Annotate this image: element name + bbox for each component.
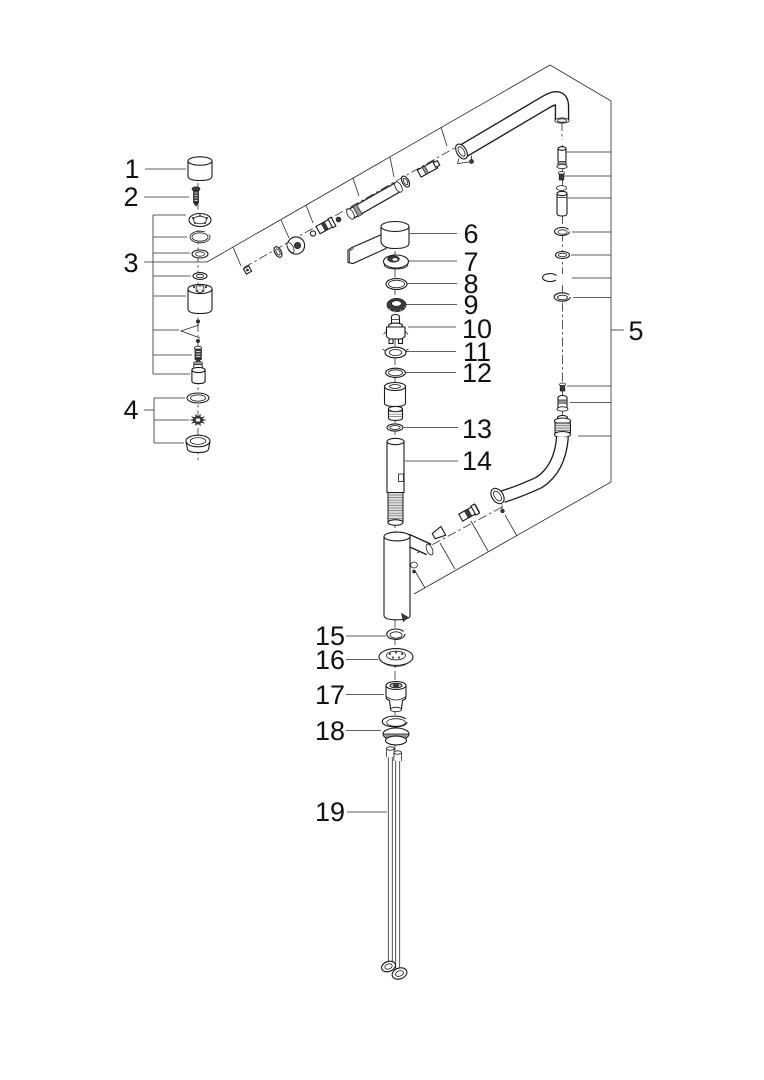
part-3-bushing <box>192 367 205 383</box>
part-2-screw <box>192 187 200 206</box>
part-18-mounting-nut <box>382 716 409 745</box>
part-7-cap-ring <box>384 255 409 269</box>
sleeve-unlabeled <box>385 383 406 407</box>
part-label-16: 16 <box>315 645 345 675</box>
diagram-canvas: 1 2 3 4 5 6 7 8 9 10 11 12 13 14 15 16 1… <box>0 0 764 1080</box>
part-3-screw-and-nut <box>193 346 202 368</box>
part-3-open-ring <box>190 229 212 243</box>
spray-head-assembly <box>243 159 440 274</box>
part-16-base-flange <box>379 649 413 667</box>
adapter-unlabeled <box>389 406 403 420</box>
part-3-cartridge-body <box>188 284 212 313</box>
part-label-13: 13 <box>462 414 492 444</box>
part-17-mounting-bush <box>386 682 406 712</box>
exploded-diagram-svg: 1 2 3 4 5 6 7 8 9 10 11 12 13 14 15 16 1… <box>0 0 764 1080</box>
bracket-4 <box>154 398 189 443</box>
part-3-funnel <box>181 320 200 343</box>
part-label-14: 14 <box>462 446 492 476</box>
body-side-port <box>407 540 434 556</box>
part-11-ring <box>383 347 409 358</box>
part-label-6: 6 <box>463 219 478 249</box>
part-10-cartridge <box>384 315 409 344</box>
part-12-o-ring <box>386 368 406 377</box>
part-19-supply-hoses <box>380 747 408 981</box>
spout <box>453 98 569 163</box>
part-label-18: 18 <box>315 716 345 746</box>
part-label-1: 1 <box>124 154 139 184</box>
part-label-5: 5 <box>628 316 643 346</box>
part-label-19: 19 <box>315 797 345 827</box>
part-3-washer-a <box>192 250 208 258</box>
part-4-ring <box>187 393 209 403</box>
group-outline-5 <box>207 65 611 594</box>
part-label-3: 3 <box>123 248 138 278</box>
part-14-shank-tube <box>387 438 404 525</box>
part-1-cap <box>188 157 212 181</box>
part-13-o-ring <box>387 424 403 431</box>
part-label-17: 17 <box>315 680 345 710</box>
part-label-4: 4 <box>123 395 138 425</box>
bracket-3 <box>153 215 192 374</box>
part-label-12: 12 <box>462 358 492 388</box>
part-8-o-ring <box>386 279 407 290</box>
part-3-strainer-disc <box>189 214 211 227</box>
part-9-threaded-ring <box>387 298 406 311</box>
part-4-cap-nut <box>186 435 210 452</box>
part-15-split-ring <box>387 629 405 640</box>
part-label-2: 2 <box>123 182 138 212</box>
spray-hose <box>431 437 562 541</box>
aerator-parts-column <box>543 147 571 438</box>
part-3-washer-b <box>193 273 207 280</box>
